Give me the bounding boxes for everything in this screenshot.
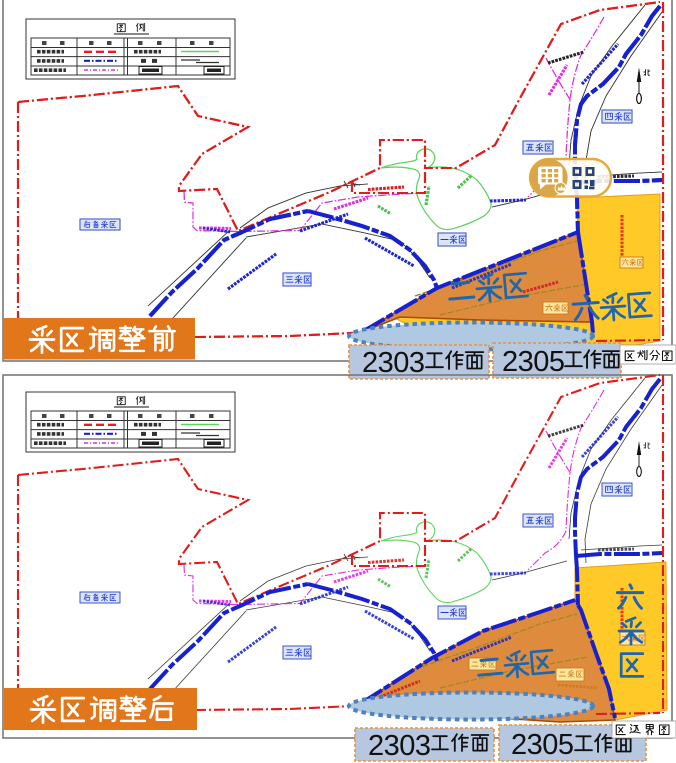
svg-text:2305: 2305	[511, 729, 574, 761]
svg-text:2305: 2305	[502, 346, 565, 378]
svg-text:2303: 2303	[368, 730, 431, 762]
